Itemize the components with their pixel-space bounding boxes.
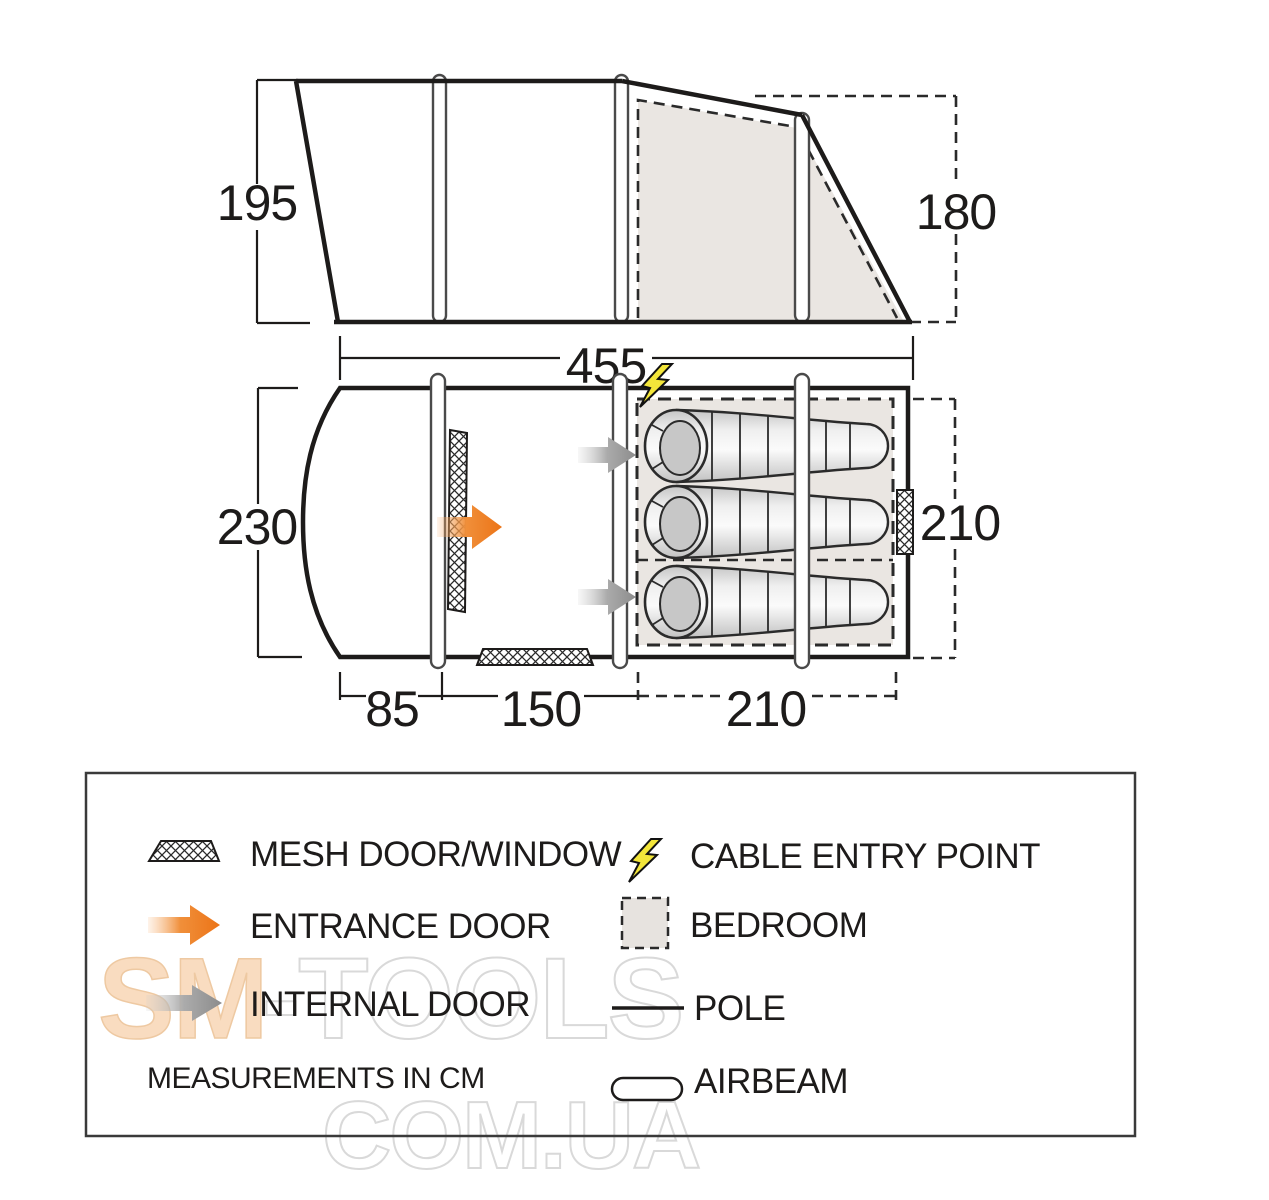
front-section-label: 85: [365, 681, 419, 737]
diagram-canvas: 180 195 455: [0, 0, 1269, 1200]
airbeam-pole-plan-3: [795, 374, 809, 668]
pole-legend-label: POLE: [694, 989, 785, 1028]
bedroom-width-label: 210: [920, 495, 1000, 551]
internal-legend-label: INTERNAL DOOR: [250, 985, 530, 1024]
tent-dimensions-diagram: 180 195 455: [0, 0, 1269, 1200]
floor-plan-view: 230 210 85 150 210: [217, 364, 1000, 737]
front-height-measure: 195: [217, 80, 310, 323]
measurements-note: MEASUREMENTS IN CM: [147, 1062, 485, 1095]
mesh-swatch-icon: [149, 841, 219, 861]
middle-section-label: 150: [501, 681, 581, 737]
bedroom-width-measure: 210: [913, 399, 1000, 658]
mesh-legend-label: MESH DOOR/WINDOW: [250, 835, 622, 874]
width-measure: 230: [217, 388, 302, 657]
entrance-legend-label: ENTRANCE DOOR: [250, 907, 551, 946]
airbeam-pole-side-2: [615, 75, 628, 322]
cable-legend-label: CABLE ENTRY POINT: [690, 837, 1040, 876]
bedroom-shaded-side: [638, 100, 903, 320]
airbeam-legend-label: AIRBEAM: [694, 1062, 848, 1101]
front-height-label: 195: [217, 175, 297, 231]
airbeam-pole-side-3: [795, 113, 809, 322]
mesh-window-bottom: [477, 649, 593, 665]
bedroom-legend-label: BEDROOM: [690, 906, 867, 945]
rear-height-label: 180: [916, 184, 996, 240]
side-elevation-view: 180 195 455: [217, 75, 996, 394]
airbeam-pill-icon: [612, 1078, 682, 1100]
airbeam-pole-side-1: [433, 75, 446, 322]
lightning-bolt-icon: [629, 839, 661, 882]
section-measures: 85 150 210: [340, 672, 896, 737]
bedroom-swatch-icon: [622, 898, 668, 948]
mesh-window-rear: [897, 490, 913, 554]
width-label: 230: [217, 499, 297, 555]
length-label: 455: [566, 338, 646, 394]
bedroom-section-label: 210: [726, 681, 806, 737]
airbeam-pole-plan-2: [613, 374, 627, 668]
